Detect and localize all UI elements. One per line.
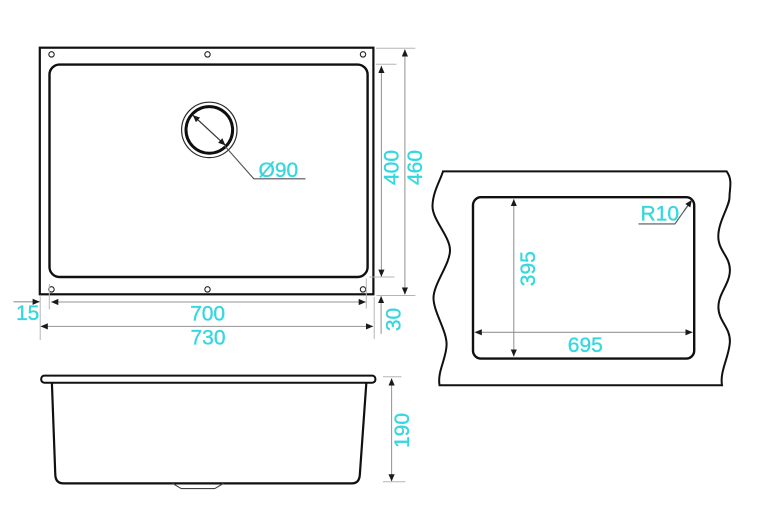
svg-text:Ø90: Ø90 [259,159,299,182]
svg-text:190: 190 [391,413,414,448]
svg-text:30: 30 [383,308,406,331]
svg-text:395: 395 [517,251,540,286]
svg-text:730: 730 [190,327,225,350]
svg-text:700: 700 [190,302,225,325]
svg-text:460: 460 [404,150,427,185]
svg-text:695: 695 [568,334,603,357]
svg-text:R10: R10 [641,202,680,225]
svg-text:400: 400 [381,150,404,185]
svg-text:15: 15 [16,302,39,325]
